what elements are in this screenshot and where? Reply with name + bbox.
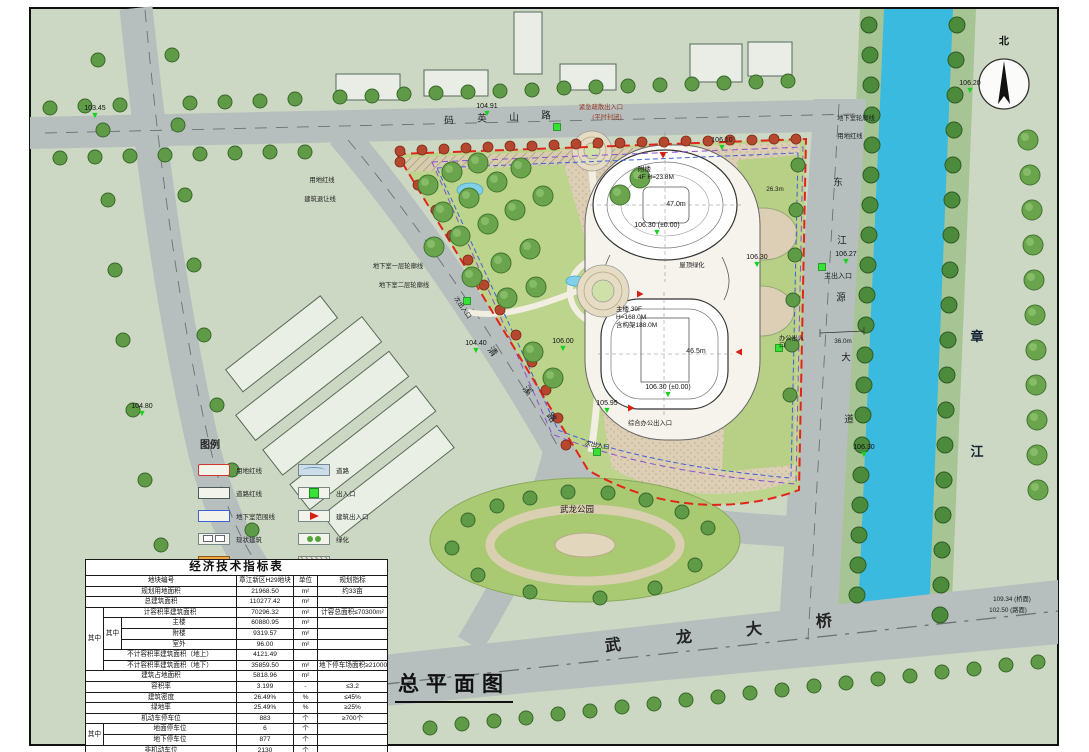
red-line-label-right: 用地红线 — [837, 133, 862, 141]
tower-width: 46.5m — [686, 348, 705, 356]
legend-item: 地下室范围线 — [198, 504, 298, 527]
elevation-marker: 104.40▼ — [465, 340, 486, 353]
emergency-exit-note: (平时封闭) — [592, 114, 621, 122]
road-right-char: 大 — [841, 352, 851, 363]
elevation-marker: 106.00▼ — [552, 338, 573, 351]
site-plan-drawing: 北 103.45▼ 104.91▼ 106.20▼ 106.10▼ 106.27… — [0, 0, 1089, 752]
elevation-marker: 105.95▼ — [596, 400, 617, 413]
table-title: 经济技术指标表 — [86, 560, 388, 576]
elevation-marker: 103.45▼ — [84, 105, 105, 118]
annex-spec-block: 附楼 4F H=23.8M — [638, 166, 674, 182]
elevation-marker: 104.80▼ — [131, 403, 152, 416]
road-right-char: 源 — [836, 292, 846, 303]
road-top-char: 山 — [509, 112, 519, 123]
elevation-marker: 106.30▼ — [746, 254, 767, 267]
drawing-title: 总平面图 — [395, 668, 513, 703]
legend-title: 图例 — [200, 436, 408, 451]
bridge-name-char: 桥 — [815, 612, 833, 633]
economic-indicators-table: 经济技术指标表 地块编号章江新区H29地块单位规划指标 规划用地面积21968.… — [85, 559, 387, 752]
compass-north-label: 北 — [999, 33, 1009, 48]
emergency-exit-label: 紧急疏散出入口 — [579, 104, 623, 112]
river-name-char: 章 — [970, 329, 983, 345]
bridge-name-char: 大 — [745, 620, 763, 641]
legend-item: 绿化 — [298, 527, 408, 550]
legend-item: 出入口 — [298, 481, 408, 504]
greenery-swatch — [298, 533, 330, 545]
red-line-swatch — [198, 464, 230, 476]
legend-item: 建筑出入口 — [298, 504, 408, 527]
elevation-marker: 106.27▼ — [835, 251, 856, 264]
bridge-deck-elev: 109.34 (桥面) — [993, 596, 1031, 604]
dim-36-0: 36.0m — [834, 338, 852, 346]
legend-item: 道路 — [298, 458, 408, 481]
legend-item: 道路红线 — [198, 481, 298, 504]
road-top-char: 路 — [541, 110, 551, 121]
bridge-road-elev: 102.50 (路面) — [989, 607, 1027, 615]
existing-building-swatch — [198, 533, 230, 545]
elevation-marker: 106.10▼ — [711, 137, 732, 150]
legend-item: 用地红线 — [198, 458, 298, 481]
annex-elevation: 106.30 (±0.00)▼ — [634, 222, 679, 235]
road-right-char: 道 — [844, 414, 854, 425]
basement-line-swatch — [198, 510, 230, 522]
road-swatch — [298, 464, 330, 476]
elevation-marker: 106.20▼ — [959, 80, 980, 93]
setback-line-label: 建筑退让线 — [304, 196, 335, 204]
red-line-label-left: 用地红线 — [309, 177, 334, 185]
annex-diameter: 47.0m — [666, 201, 685, 209]
north-compass — [979, 59, 1029, 109]
elevation-marker: 106.30▼ — [853, 444, 874, 457]
basement-l1-label: 地下室一层轮廓线 — [373, 263, 423, 271]
basement-outline-label: 地下室轮廓线 — [837, 115, 875, 123]
road-right-char: 东 — [833, 177, 843, 188]
legend-item: 现状建筑 — [198, 527, 298, 550]
tower-elevation: 106.30 (±0.00)▼ — [645, 384, 690, 397]
elevation-marker: 104.91▼ — [476, 103, 497, 116]
roof-green-label: 屋顶绿化 — [679, 262, 704, 270]
road-right-char: 江 — [837, 235, 847, 246]
road-line-swatch — [198, 487, 230, 499]
dim-26-3: 26.3m — [766, 186, 784, 194]
tower-spec-block: 主楼 39F H=168.0M 含构架188.0M — [616, 306, 657, 330]
office-entrance-label: 办公出入口 — [779, 335, 805, 349]
combined-entrance-label: 综合办公出入口 — [628, 420, 672, 428]
park-name-label: 武龙公园 — [560, 504, 594, 514]
bridge-name-char: 武 — [604, 636, 622, 657]
building-entrance-swatch — [298, 510, 330, 522]
basement-l2-label: 地下室二层轮廓线 — [379, 282, 429, 290]
wulong-park — [430, 478, 740, 602]
entrance-swatch — [298, 487, 330, 499]
main-entrance-label: 主出入口 — [824, 273, 852, 281]
river-name-char: 江 — [970, 444, 983, 460]
bridge-name-char: 龙 — [675, 628, 693, 649]
road-top-char: 码 — [444, 115, 454, 126]
elevation-triangle-icon: ▼ — [84, 113, 105, 118]
legend: 图例 用地红线 道路红线 地下室范围线 现状建筑 拟建建筑 道路 出入口 建筑出… — [198, 436, 408, 573]
